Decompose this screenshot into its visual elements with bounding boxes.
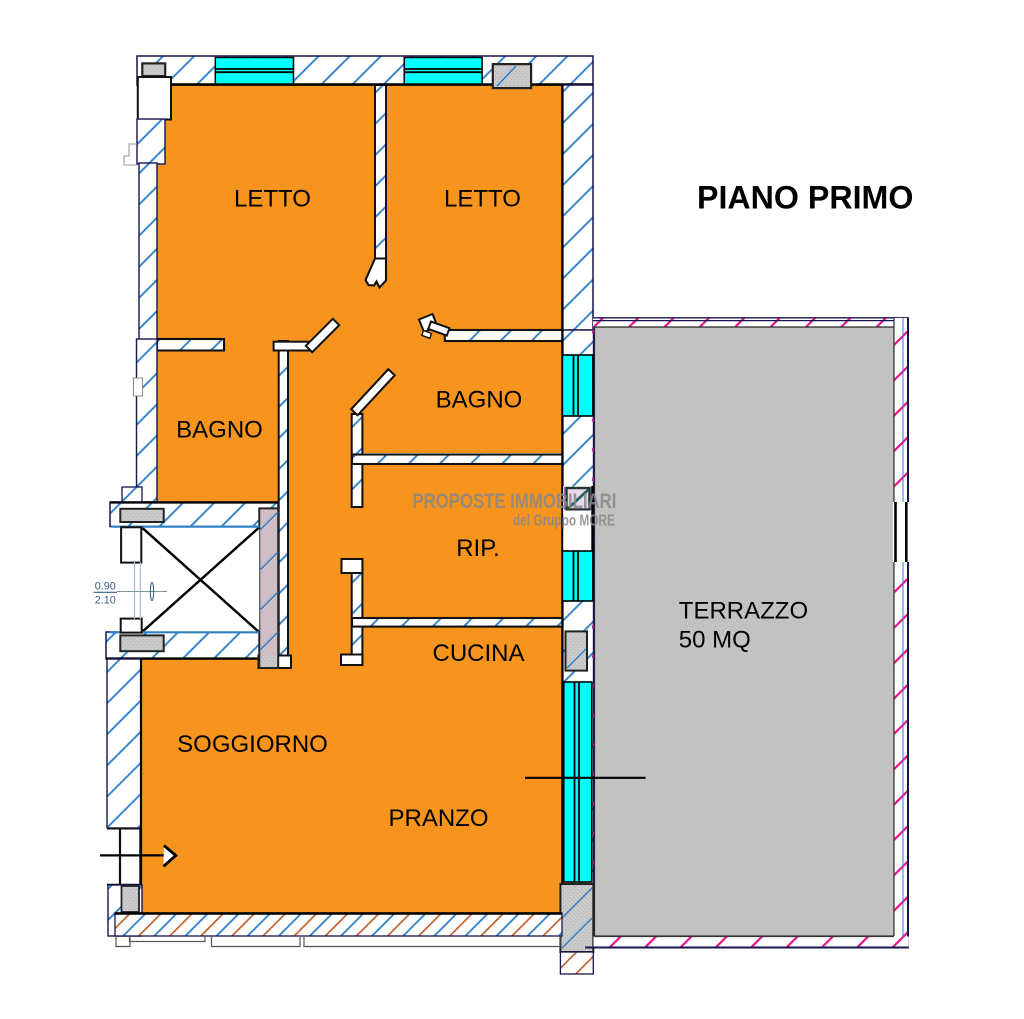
svg-text:BAGNO: BAGNO [176, 417, 263, 444]
svg-text:del Gruppo MORE: del Gruppo MORE [513, 511, 615, 529]
svg-text:PRANZO: PRANZO [388, 805, 488, 832]
svg-text:CUCINA: CUCINA [432, 640, 524, 667]
svg-text:BAGNO: BAGNO [436, 387, 523, 414]
svg-text:PIANO PRIMO: PIANO PRIMO [697, 180, 913, 216]
svg-text:LETTO: LETTO [234, 186, 311, 213]
svg-text:0.90: 0.90 [95, 580, 116, 592]
svg-text:RIP.: RIP. [456, 535, 500, 562]
svg-text:50 MQ: 50 MQ [679, 627, 751, 654]
svg-text:2.10: 2.10 [95, 594, 116, 606]
svg-text:SOGGIORNO: SOGGIORNO [177, 731, 328, 758]
svg-text:TERRAZZO: TERRAZZO [679, 598, 808, 625]
svg-text:LETTO: LETTO [444, 186, 521, 213]
